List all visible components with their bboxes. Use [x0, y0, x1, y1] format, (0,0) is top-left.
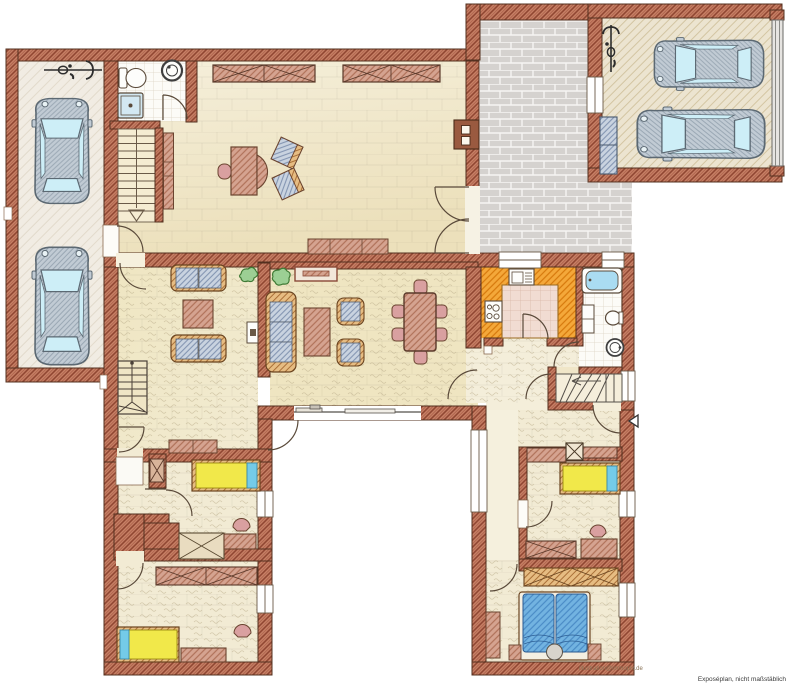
- svg-text:illustration@immopix.de: illustration@immopix.de: [579, 666, 643, 672]
- svg-text:Exposéplan, nicht maßstäblich: Exposéplan, nicht maßstäblich: [698, 676, 787, 683]
